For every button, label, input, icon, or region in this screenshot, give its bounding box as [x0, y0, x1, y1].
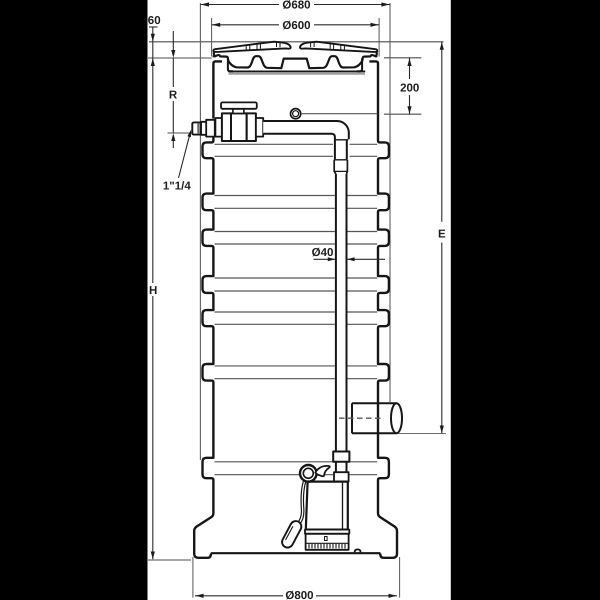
svg-text:Ø800: Ø800 — [285, 590, 313, 600]
svg-text:200: 200 — [400, 82, 419, 94]
svg-text:Ø600: Ø600 — [282, 20, 310, 32]
svg-text:Ø680: Ø680 — [282, 0, 310, 12]
svg-text:E: E — [438, 228, 446, 240]
svg-text:60: 60 — [148, 15, 161, 27]
svg-text:R: R — [169, 89, 178, 101]
svg-text:1"1/4: 1"1/4 — [163, 181, 191, 193]
svg-text:Ø40: Ø40 — [312, 247, 334, 259]
svg-text:H: H — [149, 285, 157, 297]
